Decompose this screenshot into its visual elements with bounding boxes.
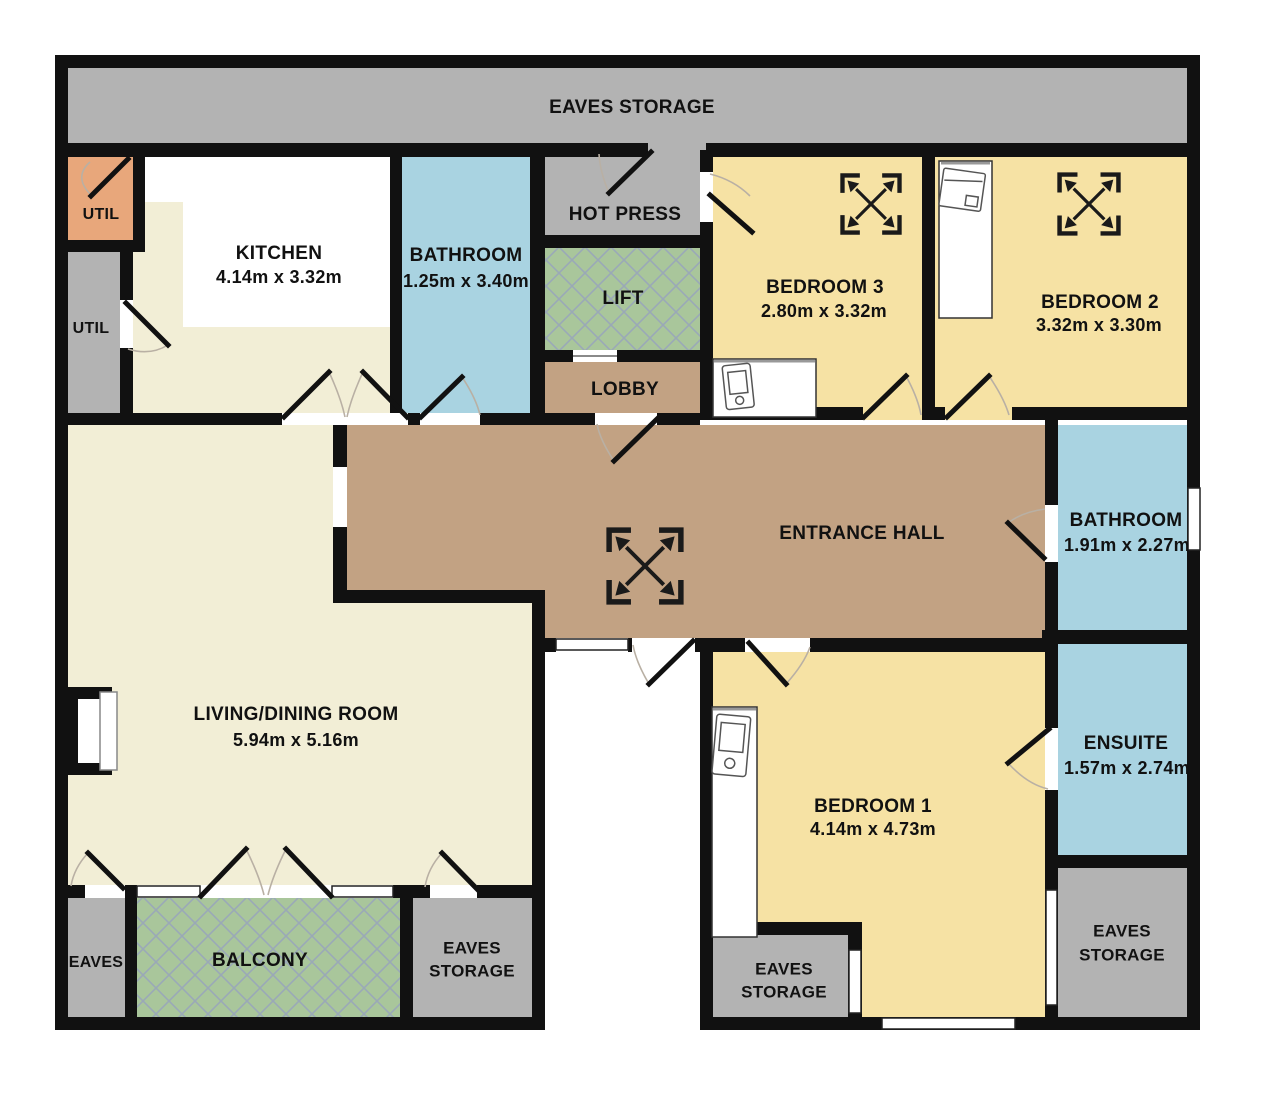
dims-bedroom3: 2.80m x 3.32m	[761, 301, 887, 321]
floor-plan-canvas: EAVES STORAGE UTIL UTIL KITCHEN 4.14m x …	[0, 0, 1280, 1099]
label-lobby: LOBBY	[591, 379, 659, 400]
room-eaves-storage-right	[1058, 868, 1187, 1017]
label-eaves-storage-right-1: EAVES	[1093, 921, 1151, 940]
dims-bedroom2: 3.32m x 3.30m	[1036, 315, 1162, 335]
window-living-right	[332, 886, 393, 897]
window-hall	[556, 639, 628, 650]
window-bedroom1	[882, 1018, 1015, 1029]
dims-bedroom1: 4.14m x 4.73m	[810, 819, 936, 839]
label-eaves-left: EAVES	[69, 954, 124, 971]
chair-icon	[712, 714, 751, 777]
label-living-dining: LIVING/DINING ROOM	[194, 704, 399, 725]
dims-bathroom-main: 1.91m x 2.27m	[1064, 535, 1190, 555]
label-eaves-storage-left-1: EAVES	[443, 938, 501, 957]
floor-plan: EAVES STORAGE UTIL UTIL KITCHEN 4.14m x …	[0, 0, 1280, 1099]
label-hot-press: HOT PRESS	[569, 204, 682, 225]
chair-icon	[722, 363, 754, 410]
dims-kitchen: 4.14m x 3.32m	[216, 267, 342, 287]
label-bedroom1: BEDROOM 1	[814, 796, 932, 817]
label-util-orange: UTIL	[83, 206, 120, 223]
label-bathroom-top: BATHROOM	[410, 245, 523, 266]
label-bedroom2: BEDROOM 2	[1041, 292, 1159, 313]
label-eaves-storage-right-2: STORAGE	[1079, 945, 1165, 964]
dims-ensuite: 1.57m x 2.74m	[1064, 758, 1190, 778]
label-bathroom-main: BATHROOM	[1070, 510, 1183, 531]
label-util-gray: UTIL	[73, 320, 110, 337]
fireplace	[64, 687, 117, 775]
dims-living-dining: 5.94m x 5.16m	[233, 730, 359, 750]
label-entrance-hall: ENTRANCE HALL	[779, 523, 944, 544]
window-living-left	[137, 886, 200, 897]
label-eaves-storage-mid-1: EAVES	[755, 959, 813, 978]
label-lift: LIFT	[602, 288, 643, 309]
dims-bathroom-top: 1.25m x 3.40m	[403, 271, 529, 291]
label-eaves-storage-left-2: STORAGE	[429, 961, 515, 980]
label-eaves-storage-mid-2: STORAGE	[741, 982, 827, 1001]
label-balcony: BALCONY	[212, 950, 308, 971]
opening-living-hall	[333, 467, 347, 527]
bed-icon	[939, 168, 986, 211]
label-eaves-top: EAVES STORAGE	[549, 97, 715, 118]
label-kitchen: KITCHEN	[236, 243, 323, 264]
label-ensuite: ENSUITE	[1084, 733, 1168, 754]
door-entrance	[649, 641, 693, 684]
label-bedroom3: BEDROOM 3	[766, 277, 884, 298]
room-eaves-storage-left	[413, 898, 532, 1017]
